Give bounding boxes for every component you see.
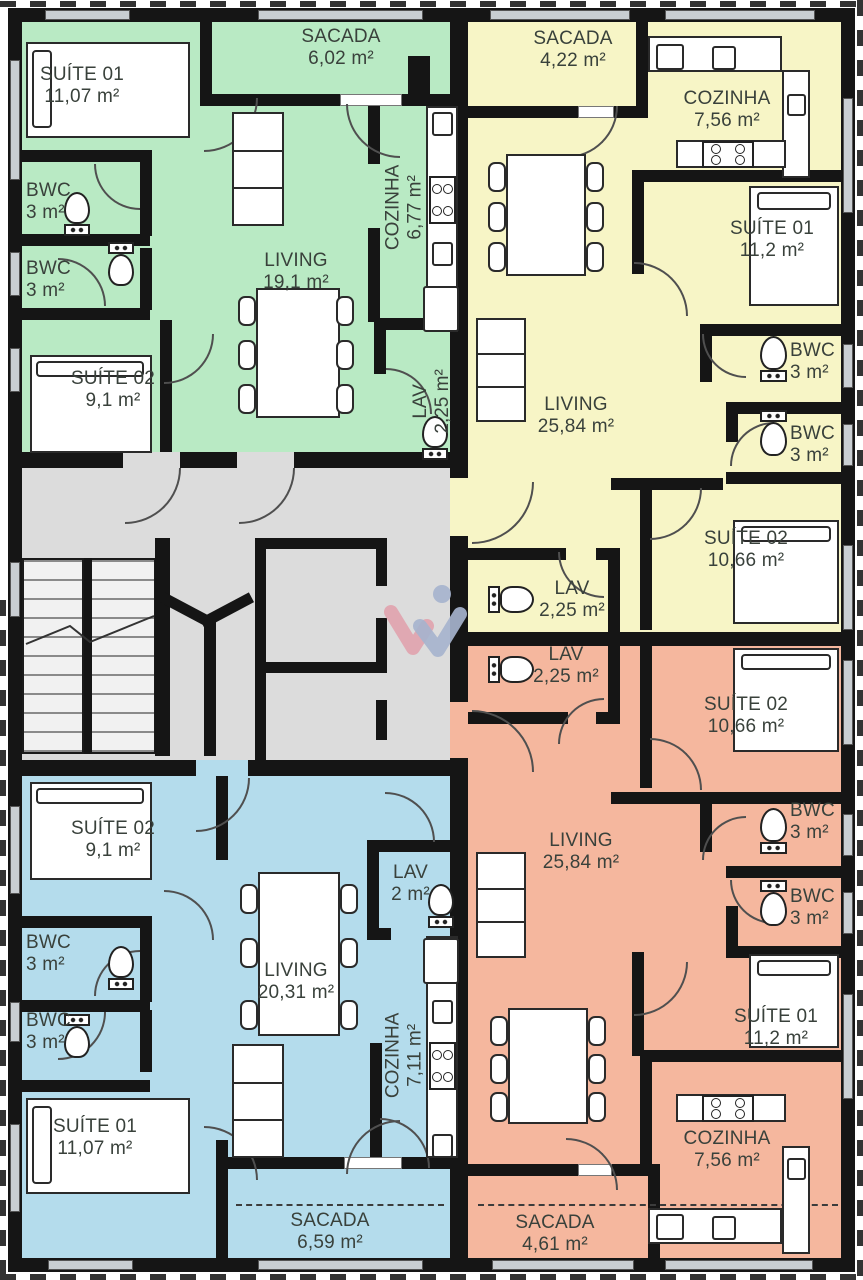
- room-name: SUÍTE 01: [12, 64, 152, 86]
- wall: [255, 673, 266, 760]
- room-area: 7,11 m²: [405, 1024, 426, 1087]
- chair: [336, 340, 354, 370]
- room-label-orange-living: LIVING 25,84 m²: [501, 830, 661, 875]
- room-label-blue-bwc-2: BWC 3 m²: [26, 1010, 96, 1055]
- chair: [488, 162, 506, 192]
- window: [45, 10, 130, 20]
- room-name: BWC: [790, 423, 850, 445]
- toilet: [760, 336, 787, 382]
- stairs-break-line: [24, 610, 156, 650]
- door-gap: [450, 702, 468, 758]
- chair: [490, 1054, 508, 1084]
- room-name: BWC: [26, 258, 96, 280]
- room-name: SUÍTE 01: [20, 1116, 170, 1138]
- stairs-flight: [22, 558, 84, 754]
- room-label-blue-lav: LAV 2 m²: [363, 862, 458, 907]
- room-label-orange-cozinha: COZINHA 7,56 m²: [647, 1128, 807, 1173]
- room-area: 6,59 m²: [240, 1232, 420, 1254]
- room-label-orange-suite-01: SUÍTE 01 11,2 m²: [701, 1006, 851, 1051]
- stairs-stringer: [84, 558, 92, 754]
- room-name: SUÍTE 02: [671, 694, 821, 716]
- hatch-top: [0, 1, 863, 7]
- room-name: BWC: [790, 886, 850, 908]
- wall: [632, 170, 644, 274]
- room-area: 3 m²: [790, 445, 850, 467]
- wall: [468, 548, 566, 560]
- chair: [586, 242, 604, 272]
- room-label-yellow-bwc-2: BWC 3 m²: [790, 423, 850, 468]
- window: [10, 252, 20, 296]
- room-name: SUÍTE 02: [671, 528, 821, 550]
- room-label-blue-suite-01: SUÍTE 01 11,07 m²: [20, 1116, 170, 1161]
- chair: [336, 296, 354, 326]
- wall: [641, 170, 841, 182]
- room-name: LIVING: [221, 250, 371, 272]
- window: [48, 1260, 133, 1270]
- room-area: 3 m²: [790, 822, 850, 844]
- room-area: 25,84 m²: [501, 416, 651, 438]
- wall: [8, 8, 22, 1272]
- room-name: SACADA: [483, 28, 663, 50]
- kitchen-sink: [712, 1216, 736, 1240]
- toilet: [760, 880, 787, 926]
- window: [665, 1260, 813, 1270]
- pillow: [757, 960, 831, 976]
- window: [490, 10, 630, 20]
- room-area: 3 m²: [790, 908, 850, 930]
- toilet: [108, 242, 134, 286]
- window: [10, 1002, 20, 1042]
- room-label-orange-suite-02: SUÍTE 02 10,66 m²: [671, 694, 821, 739]
- wall: [726, 906, 738, 946]
- room-area: 10,66 m²: [671, 550, 821, 572]
- room-label-orange-sacada: SACADA 4,61 m²: [465, 1212, 645, 1257]
- room-name: BWC: [790, 340, 850, 362]
- wall: [255, 538, 387, 549]
- chair: [588, 1092, 606, 1122]
- room-label-orange-lav: LAV 2,25 m²: [491, 644, 641, 689]
- hatch-bottom: [0, 1274, 863, 1280]
- wall: [726, 866, 841, 878]
- room-label-green-lav: LAV 2,25 m²: [377, 346, 487, 456]
- room-label-blue-cozinha: COZINHA 7,11 m²: [350, 1000, 460, 1110]
- wall: [367, 928, 391, 940]
- window: [843, 98, 853, 213]
- wall: [468, 1164, 578, 1176]
- wall: [255, 662, 387, 673]
- room-label-green-bwc-2: BWC 3 m²: [26, 258, 96, 303]
- room-label-yellow-sacada: SACADA 4,22 m²: [483, 28, 663, 73]
- chair: [586, 202, 604, 232]
- toilet: [760, 410, 787, 456]
- room-label-orange-bwc-1: BWC 3 m²: [790, 800, 850, 845]
- kitchen-sink: [656, 1214, 684, 1240]
- room-name: SUÍTE 02: [38, 368, 188, 390]
- room-area: 7,56 m²: [647, 110, 807, 132]
- room-area: 3 m²: [26, 280, 96, 302]
- sofa: [232, 112, 284, 226]
- window: [665, 10, 815, 20]
- room-area: 11,07 m²: [12, 86, 152, 108]
- wall: [140, 1010, 152, 1072]
- room-name: BWC: [26, 1010, 96, 1032]
- door-gap: [123, 452, 180, 468]
- sofa: [232, 1044, 284, 1158]
- room-area: 3 m²: [790, 362, 850, 384]
- room-area: 20,31 m²: [221, 982, 371, 1004]
- stairs-flight: [90, 558, 156, 754]
- window: [258, 1260, 423, 1270]
- wall: [22, 916, 152, 928]
- room-label-green-living: LIVING 19,1 m²: [221, 250, 371, 295]
- room-area: 9,1 m²: [38, 840, 188, 862]
- wall: [22, 308, 150, 320]
- room-area: 3 m²: [26, 1032, 96, 1054]
- room-area: 7,56 m²: [647, 1150, 807, 1172]
- hatch-right: [857, 0, 863, 1280]
- chair: [490, 1016, 508, 1046]
- wall: [140, 928, 152, 1002]
- room-label-green-suite-01: SUÍTE 01 11,07 m²: [12, 64, 152, 109]
- window: [10, 1124, 20, 1212]
- door-gap: [196, 760, 248, 776]
- room-name: SUÍTE 01: [701, 1006, 851, 1028]
- room-name: SUÍTE 02: [38, 818, 188, 840]
- window: [10, 348, 20, 392]
- room-area: 2,25 m²: [432, 369, 453, 433]
- chair: [586, 162, 604, 192]
- room-name: SACADA: [240, 1210, 420, 1232]
- room-label-green-suite-02: SUÍTE 02 9,1 m²: [38, 368, 188, 413]
- window: [492, 1260, 634, 1270]
- room-area: 11,2 m²: [697, 240, 847, 262]
- room-label-blue-living: LIVING 20,31 m²: [221, 960, 371, 1005]
- room-area: 4,22 m²: [483, 50, 663, 72]
- window: [10, 806, 20, 894]
- wall: [641, 1050, 841, 1062]
- room-name: SACADA: [465, 1212, 645, 1234]
- room-area: 11,07 m²: [20, 1138, 170, 1160]
- chair: [490, 1092, 508, 1122]
- wall: [155, 538, 170, 756]
- toilet: [108, 946, 134, 990]
- kitchen-sink: [432, 1134, 453, 1158]
- room-area: 6,02 m²: [251, 48, 431, 70]
- room-label-green-bwc-1: BWC 3 m²: [26, 180, 96, 225]
- room-area: 2,25 m²: [497, 600, 647, 622]
- room-label-blue-suite-02: SUÍTE 02 9,1 m²: [38, 818, 188, 863]
- wall: [376, 700, 387, 740]
- window: [843, 545, 853, 630]
- floor-plan: SUÍTE 01 11,07 m² BWC 3 m² BWC 3 m² SUÍT…: [0, 0, 863, 1280]
- chair: [336, 384, 354, 414]
- stove: [702, 141, 754, 168]
- wall: [612, 1164, 648, 1176]
- room-name: LAV: [491, 644, 641, 666]
- room-name: LAV: [363, 862, 458, 884]
- room-area: 4,61 m²: [465, 1234, 645, 1256]
- pillow: [36, 788, 144, 804]
- room-name: BWC: [26, 180, 96, 202]
- room-name: COZINHA: [647, 1128, 807, 1150]
- dining-table: [506, 154, 586, 276]
- chair: [238, 340, 256, 370]
- room-name: COZINHA: [383, 164, 404, 250]
- door-gap: [237, 452, 294, 468]
- dining-table: [508, 1008, 588, 1124]
- wall: [614, 106, 648, 118]
- wall: [204, 620, 216, 756]
- room-label-yellow-suite-01: SUÍTE 01 11,2 m²: [697, 218, 847, 263]
- wall: [726, 472, 841, 484]
- room-label-blue-sacada: SACADA 6,59 m²: [240, 1210, 420, 1255]
- chair: [340, 884, 358, 914]
- wall: [726, 402, 738, 442]
- chair: [588, 1016, 606, 1046]
- dining-table: [256, 288, 340, 418]
- kitchen-sink: [432, 112, 453, 136]
- wall: [255, 538, 266, 673]
- room-label-yellow-suite-02: SUÍTE 02 10,66 m²: [671, 528, 821, 573]
- room-area: 6,77 m²: [405, 175, 426, 239]
- room-name: LIVING: [501, 394, 651, 416]
- chair: [488, 242, 506, 272]
- window: [843, 660, 853, 745]
- room-name: LAV: [410, 384, 431, 419]
- room-area: 11,2 m²: [701, 1028, 851, 1050]
- room-name: BWC: [790, 800, 850, 822]
- hatch-left: [0, 600, 6, 1280]
- room-area: 10,66 m²: [671, 716, 821, 738]
- room-area: 25,84 m²: [501, 852, 661, 874]
- watermark-logo: [383, 578, 483, 678]
- room-label-blue-bwc-1: BWC 3 m²: [26, 932, 96, 977]
- door-gap: [450, 478, 468, 536]
- wall: [140, 162, 152, 236]
- room-label-yellow-cozinha: COZINHA 7,56 m²: [647, 88, 807, 133]
- room-label-green-cozinha: COZINHA 6,77 m²: [350, 152, 460, 262]
- fridge: [423, 286, 459, 332]
- wall: [140, 248, 152, 310]
- room-label-yellow-bwc-1: BWC 3 m²: [790, 340, 850, 385]
- wall: [22, 1080, 150, 1092]
- room-name: SACADA: [251, 26, 431, 48]
- room-area: 2 m²: [363, 884, 458, 906]
- room-area: 19,1 m²: [221, 272, 371, 294]
- window: [10, 562, 20, 617]
- chair: [240, 884, 258, 914]
- room-label-orange-bwc-2: BWC 3 m²: [790, 886, 850, 931]
- room-area: 2,25 m²: [491, 666, 641, 688]
- window: [258, 10, 423, 20]
- dining-table: [258, 872, 340, 1036]
- kitchen-sink: [712, 46, 736, 70]
- chair: [488, 202, 506, 232]
- chair: [238, 384, 256, 414]
- room-name: COZINHA: [647, 88, 807, 110]
- room-area: 9,1 m²: [38, 390, 188, 412]
- room-area: 3 m²: [26, 202, 96, 224]
- pillow: [757, 192, 831, 210]
- room-label-green-sacada: SACADA 6,02 m²: [251, 26, 431, 71]
- stove: [702, 1095, 754, 1122]
- room-area: 3 m²: [26, 954, 96, 976]
- chair: [588, 1054, 606, 1084]
- room-name: LIVING: [221, 960, 371, 982]
- balcony-dashed-line: [236, 1204, 444, 1206]
- pillow: [741, 654, 831, 670]
- room-label-yellow-lav: LAV 2,25 m²: [497, 578, 647, 623]
- room-name: COZINHA: [383, 1012, 404, 1098]
- room-name: BWC: [26, 932, 96, 954]
- toilet: [760, 808, 787, 854]
- fridge: [423, 938, 459, 984]
- room-name: LIVING: [501, 830, 661, 852]
- room-name: SUÍTE 01: [697, 218, 847, 240]
- room-label-yellow-living: LIVING 25,84 m²: [501, 394, 651, 439]
- wall: [22, 150, 152, 162]
- room-name: LAV: [497, 578, 647, 600]
- wall: [468, 106, 580, 118]
- chair: [238, 296, 256, 326]
